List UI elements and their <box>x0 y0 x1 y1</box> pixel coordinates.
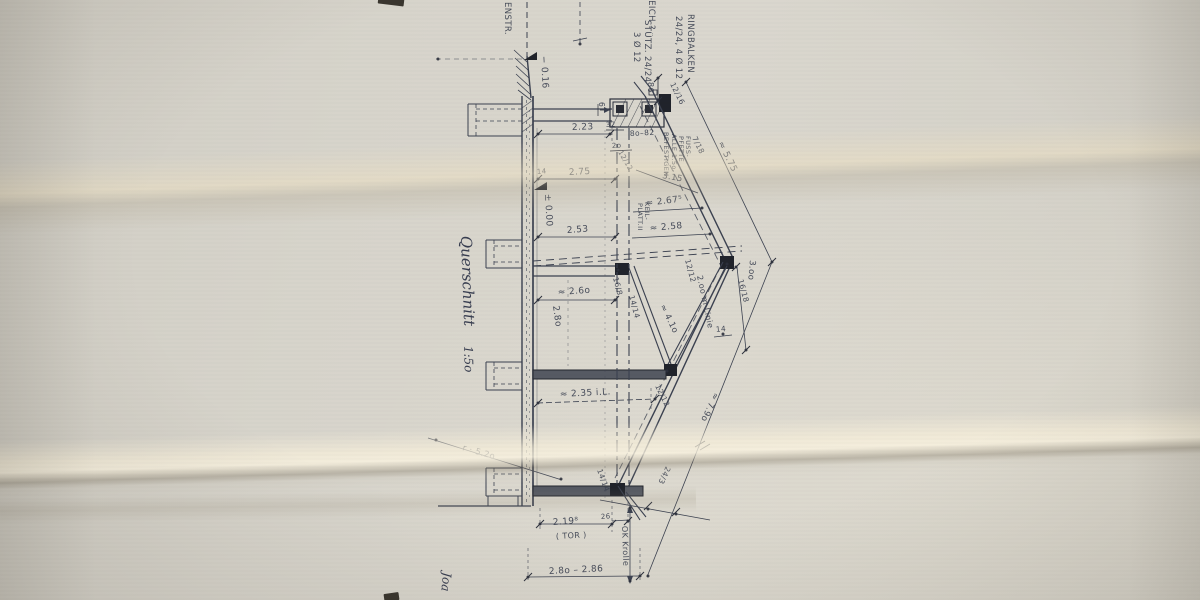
label-note-ringbalken-2: 24/24, 4 Ø 12 <box>673 16 684 79</box>
label-dim-7-90: ≈ 7.9o <box>698 391 720 423</box>
photo-of-blueprint: ENSTR.GLEICH ?STÜTZ. 24/243 Ø 12RINGBALK… <box>0 0 1200 600</box>
label-dim-86: 86 <box>646 82 655 93</box>
level-marker-floor <box>534 182 547 190</box>
label-note-ringbalken: RINGBALKEN <box>685 14 695 73</box>
label-dim-4-10: ≈ 4.1o <box>657 303 680 335</box>
label-dim-26: 26 <box>601 512 611 521</box>
label-frac-12-12-a: 12/12 <box>683 258 698 283</box>
level-marker-street <box>524 52 537 60</box>
label-note-fusspfette-4: BEFESTIGEN <box>662 132 670 176</box>
label-dim-14-right: 14 <box>715 324 726 334</box>
label-note-stuetz: STÜTZ. 24/24 <box>642 20 653 83</box>
mid-wall-2 <box>486 362 666 390</box>
label-dim-2-58: ≈ 2.58 <box>649 221 683 234</box>
label-dim-2-60: ≈ 2.6o <box>558 286 591 298</box>
label-title-querschnitt: Querschnitt <box>457 236 478 328</box>
cross-section-drawing: ENSTR.GLEICH ?STÜTZ. 24/243 Ø 12RINGBALK… <box>0 0 1200 600</box>
dimension-ticks <box>524 74 776 581</box>
dimension-dots <box>435 43 774 583</box>
label-dim-tor: ( TOR ) <box>556 530 587 541</box>
label-dim-14-left: 14 <box>537 167 547 176</box>
label-dim-32: 32 <box>606 120 616 128</box>
label-frac-16-8: 16/8 <box>611 276 624 296</box>
label-dim-2-80: 2.8o <box>550 305 563 328</box>
label-note-ok-krolle: OK Krolle <box>620 526 630 567</box>
label-dim-3-00: 3.oo <box>745 260 757 281</box>
label-dim-radius: r · 5.2o <box>461 443 496 462</box>
label-dim-8o-82: 8o–82 <box>630 128 655 138</box>
two-meter-line <box>533 246 742 266</box>
mid-wall-1 <box>486 240 615 276</box>
inner-posts <box>568 128 629 500</box>
label-level-minus-016: − 0.16 <box>538 56 550 89</box>
label-level-zero: ± 0.00 <box>542 194 554 227</box>
label-note-stuetz-2: 3 Ø 12 <box>631 32 642 63</box>
drawing-labels: ENSTR.GLEICH ?STÜTZ. 24/243 Ø 12RINGBALK… <box>438 0 757 592</box>
label-dim-6: 6 <box>597 102 606 107</box>
label-signature: Joa <box>438 569 454 592</box>
label-dim-2-35: ≈ 2.35 i.L. <box>560 387 611 400</box>
label-title-scale: 1:5o <box>461 346 476 373</box>
label-frac-16-18: 16/18 <box>736 278 751 303</box>
ring-beam-detail <box>598 78 671 151</box>
label-frac-12-12-top: 12/12 <box>616 149 634 172</box>
label-dim-24-3: 24/3 <box>656 465 672 486</box>
label-street-name: ENSTR. <box>502 2 512 35</box>
floor-slab <box>522 96 547 506</box>
label-note-keilplatte-2: PLATT.II <box>636 203 644 231</box>
label-dim-2-80-2-86: 2.8o – 2.86 <box>549 564 604 577</box>
label-note-fusspfette-3: ALLE 1.5o- <box>670 134 678 173</box>
truss-struts <box>629 262 732 372</box>
label-dim-2-19: 2.19⁸ <box>553 516 579 528</box>
label-dim-2-23: 2.23 <box>572 122 594 133</box>
rafter-top <box>634 76 733 268</box>
label-dim-5-75: ≈ 5.75 <box>715 140 738 174</box>
label-dim-3-15: 3.15 <box>661 171 683 184</box>
label-dim-2o: 2o <box>612 142 622 150</box>
label-dim-2-75: 2.75 <box>569 167 591 178</box>
label-dim-2-53: 2.53 <box>567 225 589 236</box>
